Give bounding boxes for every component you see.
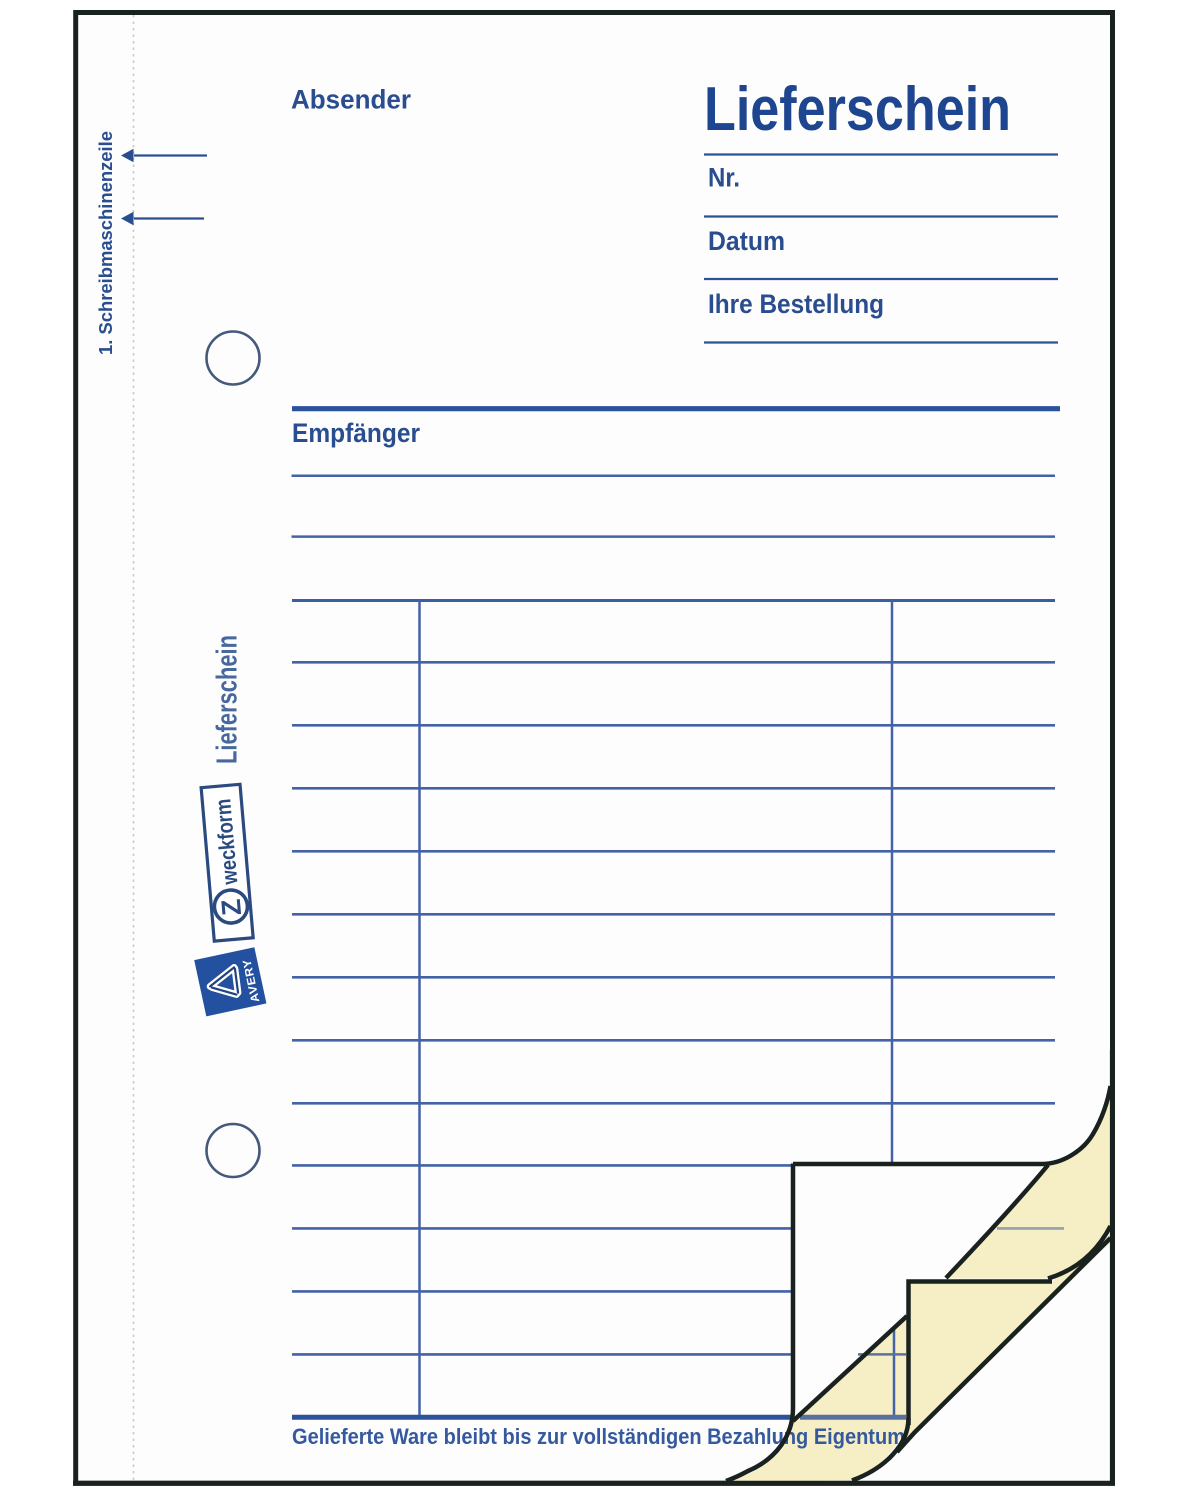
svg-text:Lieferschein: Lieferschein (212, 635, 244, 764)
svg-text:Absender: Absender (291, 85, 411, 115)
svg-text:1. Schreibmaschinenzeile: 1. Schreibmaschinenzeile (95, 131, 116, 355)
svg-text:Empfänger: Empfänger (292, 418, 420, 448)
svg-text:Z: Z (216, 898, 247, 917)
svg-text:Nr.: Nr. (708, 163, 740, 193)
svg-text:Lieferschein: Lieferschein (704, 75, 1011, 144)
svg-text:Datum: Datum (708, 226, 785, 256)
svg-text:Ihre Bestellung: Ihre Bestellung (708, 289, 884, 319)
